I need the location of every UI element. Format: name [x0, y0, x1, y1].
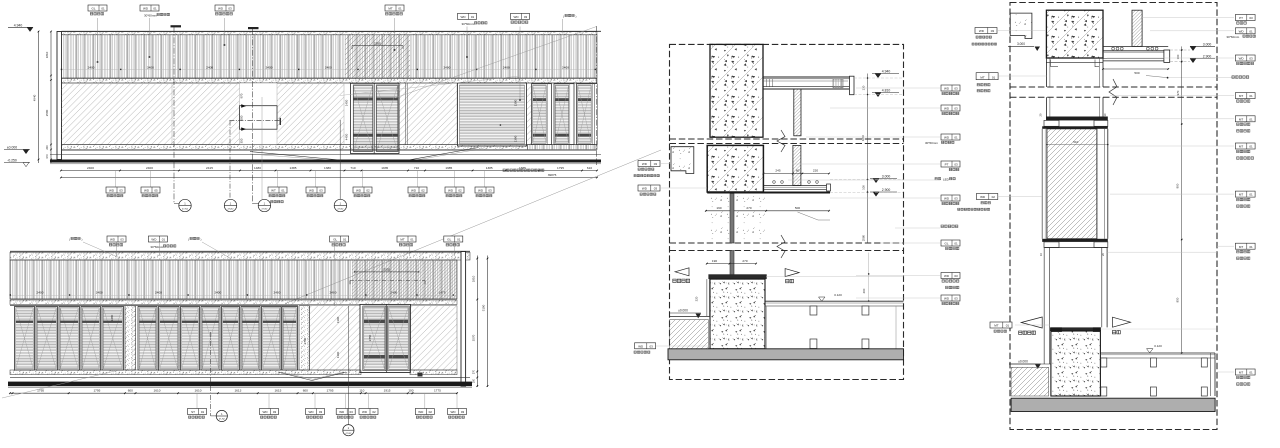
svg-text:710: 710: [414, 166, 419, 170]
svg-text:WD: WD: [461, 15, 467, 19]
svg-text:2400: 2400: [88, 66, 95, 70]
svg-text:WD: WD: [109, 189, 115, 193]
svg-text:01: 01: [162, 238, 166, 242]
svg-text:LED: LED: [943, 178, 950, 182]
svg-text:4.940: 4.940: [14, 23, 23, 27]
svg-text:(: (: [188, 238, 189, 242]
svg-text:350: 350: [239, 138, 243, 143]
svg-text:02: 02: [372, 410, 376, 414]
svg-text:MT: MT: [1239, 145, 1243, 149]
svg-text:2400: 2400: [146, 166, 153, 170]
svg-text:PT: PT: [1239, 16, 1243, 20]
svg-text:01: 01: [471, 15, 475, 19]
svg-text:03: 03: [654, 162, 658, 166]
svg-text:03: 03: [954, 163, 958, 167]
svg-text:610: 610: [587, 166, 592, 170]
svg-text:MT: MT: [1239, 371, 1243, 375]
svg-text:1390: 1390: [514, 135, 518, 142]
svg-text:500: 500: [1134, 71, 1139, 75]
svg-text:03: 03: [954, 197, 958, 201]
svg-text:3.000: 3.000: [1203, 42, 1212, 46]
svg-text:03: 03: [1249, 57, 1253, 61]
svg-text:): ): [576, 15, 577, 19]
svg-text:2400: 2400: [155, 290, 162, 294]
svg-text:1810: 1810: [45, 51, 49, 58]
svg-text:WD: WD: [144, 189, 150, 193]
svg-text:(: (: [69, 238, 70, 242]
svg-text:60: 60: [796, 169, 800, 173]
svg-text:WD: WD: [1239, 57, 1245, 61]
svg-text:WD: WD: [151, 238, 157, 242]
svg-text:WD: WD: [339, 410, 345, 414]
svg-text:4940: 4940: [33, 94, 37, 101]
svg-text:2.900: 2.900: [882, 188, 891, 192]
svg-text:2400: 2400: [330, 290, 337, 294]
svg-text:WD: WD: [309, 410, 315, 414]
svg-text:600: 600: [128, 389, 133, 393]
svg-text:0.120: 0.120: [1154, 344, 1162, 348]
svg-text:02: 02: [421, 189, 425, 193]
svg-text:WD: WD: [642, 187, 648, 191]
svg-text:2555: 2555: [383, 268, 390, 272]
svg-text:03: 03: [120, 238, 124, 242]
svg-text:03: 03: [319, 189, 323, 193]
svg-text:01: 01: [1249, 29, 1253, 33]
svg-text:WD: WD: [451, 410, 457, 414]
svg-text:47-N2: 47-N2: [261, 209, 268, 211]
svg-text:1795: 1795: [93, 389, 100, 393]
svg-text:2415: 2415: [206, 166, 213, 170]
svg-text:ST: ST: [191, 410, 195, 414]
svg-text:02: 02: [429, 410, 433, 414]
svg-text:01: 01: [153, 7, 157, 11]
svg-text:MT: MT: [400, 238, 404, 242]
svg-text:WD: WD: [944, 274, 950, 278]
svg-text:1385: 1385: [486, 166, 493, 170]
svg-text:03: 03: [350, 410, 354, 414]
svg-text:03: 03: [488, 189, 492, 193]
svg-text:±0.000: ±0.000: [7, 146, 17, 150]
svg-text:03: 03: [228, 7, 232, 11]
svg-text:30*60mm: 30*60mm: [925, 141, 938, 145]
svg-text:2750: 2750: [368, 334, 372, 341]
svg-text:GL: GL: [447, 238, 451, 242]
svg-text:3.000: 3.000: [882, 175, 891, 179]
svg-text:3.000: 3.000: [1017, 42, 1025, 46]
svg-text:370: 370: [473, 369, 476, 374]
svg-text:WD: WD: [218, 7, 224, 11]
svg-text:320: 320: [695, 296, 699, 301]
svg-text:01: 01: [1249, 245, 1253, 249]
svg-text:): ): [201, 238, 202, 242]
svg-text:2400: 2400: [562, 66, 569, 70]
svg-text:03: 03: [991, 29, 995, 33]
svg-text:5190: 5190: [482, 304, 486, 311]
svg-text:4.940: 4.940: [882, 70, 891, 74]
svg-text:47-N2: 47-N2: [182, 209, 189, 211]
svg-text:03: 03: [954, 87, 958, 91]
svg-text:2570: 2570: [472, 334, 476, 341]
svg-text:MT: MT: [980, 75, 984, 79]
svg-text:1610: 1610: [154, 389, 161, 393]
svg-text:1610: 1610: [195, 389, 202, 393]
svg-text:30*60mm: 30*60mm: [462, 22, 475, 26]
svg-text:110: 110: [359, 389, 364, 393]
svg-text:100: 100: [408, 389, 413, 393]
svg-text:710: 710: [350, 166, 355, 170]
svg-text:01: 01: [954, 136, 958, 140]
svg-text:1915: 1915: [384, 389, 391, 393]
svg-text:130: 130: [862, 85, 866, 90]
svg-text:30*60mm: 30*60mm: [150, 245, 163, 249]
svg-text:39875: 39875: [548, 173, 557, 177]
svg-text:WD: WD: [309, 189, 315, 193]
svg-text:MT: MT: [994, 324, 998, 328]
svg-text:01: 01: [1249, 145, 1253, 149]
svg-text:MT: MT: [388, 7, 392, 11]
svg-text:270: 270: [742, 259, 747, 263]
svg-text:100: 100: [862, 185, 866, 190]
svg-text:245: 245: [775, 169, 780, 173]
svg-text:01: 01: [1249, 94, 1253, 98]
svg-text:1450: 1450: [345, 99, 349, 106]
svg-text:200: 200: [862, 288, 866, 293]
svg-text:1985: 1985: [445, 166, 452, 170]
svg-text:2580: 2580: [862, 234, 866, 241]
svg-text:WD: WD: [638, 344, 644, 348]
svg-text:GL: GL: [944, 242, 948, 246]
svg-text:01: 01: [457, 238, 461, 242]
svg-text:WD: WD: [143, 7, 149, 11]
svg-text:WD: WD: [448, 189, 454, 193]
svg-text:WD: WD: [944, 107, 950, 111]
svg-text:03: 03: [273, 410, 277, 414]
svg-text:03: 03: [954, 274, 958, 278]
svg-text:03: 03: [319, 410, 323, 414]
svg-text:850: 850: [1176, 297, 1180, 302]
svg-text:1385: 1385: [290, 166, 297, 170]
svg-text:WD: WD: [642, 162, 648, 166]
svg-text:4.810: 4.810: [882, 89, 891, 93]
svg-text:4450: 4450: [345, 133, 349, 140]
svg-text:2400: 2400: [214, 290, 221, 294]
svg-text:02: 02: [458, 189, 462, 193]
svg-text:01: 01: [992, 75, 996, 79]
svg-text:03: 03: [524, 15, 528, 19]
svg-text:2400: 2400: [96, 290, 103, 294]
svg-text:2400: 2400: [325, 66, 332, 70]
svg-text:WD: WD: [979, 29, 985, 33]
svg-text:WD: WD: [418, 410, 424, 414]
svg-text:01: 01: [201, 410, 205, 414]
svg-text:03: 03: [650, 344, 654, 348]
svg-text:200: 200: [473, 378, 476, 383]
svg-text:1380: 1380: [324, 166, 331, 170]
svg-text:2400: 2400: [206, 66, 213, 70]
svg-text:2400: 2400: [266, 66, 273, 70]
svg-text:1810: 1810: [472, 275, 476, 282]
svg-text:WD: WD: [1239, 29, 1245, 33]
svg-text:03: 03: [461, 410, 465, 414]
svg-text:1385: 1385: [519, 166, 526, 170]
svg-text:GL: GL: [91, 7, 95, 11]
svg-text:01: 01: [954, 242, 958, 246]
svg-text:01: 01: [1249, 193, 1253, 197]
svg-text:MT: MT: [1239, 94, 1243, 98]
svg-text:WD: WD: [514, 15, 520, 19]
svg-text:1390: 1390: [336, 316, 340, 323]
svg-text:500: 500: [795, 206, 800, 210]
svg-text:(: (: [563, 15, 564, 19]
svg-text:3480: 3480: [110, 314, 114, 321]
svg-text:01: 01: [410, 238, 414, 242]
svg-text:WD: WD: [110, 238, 116, 242]
svg-text:MT: MT: [1239, 245, 1243, 249]
svg-text:WD: WD: [944, 197, 950, 201]
svg-text:2400: 2400: [147, 66, 154, 70]
svg-text:02: 02: [992, 195, 996, 199]
svg-text:2400: 2400: [274, 290, 281, 294]
svg-text:2400: 2400: [87, 166, 94, 170]
svg-text:): ): [82, 238, 83, 242]
svg-text:47-N2: 47-N2: [337, 209, 344, 211]
svg-text:MT: MT: [1239, 193, 1243, 197]
svg-text:WD: WD: [356, 189, 362, 193]
svg-text:WD: WD: [944, 136, 950, 140]
svg-text:30*60mm: 30*60mm: [144, 14, 157, 18]
svg-text:03: 03: [954, 297, 958, 301]
svg-text:2580: 2580: [45, 109, 49, 116]
svg-text:PT: PT: [945, 163, 949, 167]
svg-text:01: 01: [398, 7, 402, 11]
svg-text:2400: 2400: [37, 290, 44, 294]
svg-text:600: 600: [303, 389, 308, 393]
svg-text:01: 01: [281, 189, 285, 193]
svg-text:30*60mm: 30*60mm: [1226, 35, 1239, 39]
svg-text:1613: 1613: [234, 389, 241, 393]
svg-text:01: 01: [1006, 324, 1010, 328]
svg-text:WD: WD: [980, 195, 986, 199]
svg-text:200: 200: [45, 145, 49, 150]
svg-text:03: 03: [654, 187, 658, 191]
svg-text:2780: 2780: [303, 337, 307, 344]
svg-text:01: 01: [101, 7, 105, 11]
svg-text:190: 190: [712, 259, 717, 263]
svg-text:±0.000: ±0.000: [1018, 360, 1028, 364]
svg-text:900: 900: [1176, 183, 1180, 188]
svg-text:370: 370: [45, 154, 49, 159]
svg-text:01: 01: [343, 238, 347, 242]
svg-text:03: 03: [119, 189, 123, 193]
svg-text:MT: MT: [1239, 117, 1243, 121]
svg-text:600: 600: [239, 115, 243, 120]
svg-text:1795: 1795: [557, 166, 564, 170]
svg-text:1615: 1615: [274, 389, 281, 393]
svg-text:0.120: 0.120: [834, 293, 842, 297]
svg-text:2400: 2400: [503, 66, 510, 70]
svg-text:01: 01: [1249, 117, 1253, 121]
svg-text:WD: WD: [944, 87, 950, 91]
svg-text:1390: 1390: [514, 99, 518, 106]
svg-text:WD: WD: [362, 410, 368, 414]
svg-text:02: 02: [366, 189, 370, 193]
svg-text:03: 03: [954, 107, 958, 111]
svg-text:-0.250: -0.250: [7, 159, 17, 163]
svg-text:220: 220: [813, 169, 818, 173]
svg-text:510: 510: [1073, 140, 1078, 144]
svg-text:WD: WD: [944, 297, 950, 301]
svg-text:05: 05: [154, 189, 158, 193]
svg-text:WD: WD: [411, 189, 417, 193]
svg-text:2555: 2555: [374, 41, 381, 45]
svg-text:WT: WT: [271, 189, 276, 193]
svg-text:WD: WD: [478, 189, 484, 193]
svg-text:WD: WD: [263, 410, 269, 414]
svg-text:1775: 1775: [434, 389, 441, 393]
svg-text:1935: 1935: [381, 166, 388, 170]
svg-text:03: 03: [1249, 16, 1253, 20]
svg-text:47-N2: 47-N2: [219, 419, 226, 421]
svg-text:100: 100: [1176, 54, 1180, 59]
svg-text:47-N2: 47-N2: [228, 209, 235, 211]
svg-text:01: 01: [1249, 371, 1253, 375]
svg-text:±0.000: ±0.000: [678, 308, 688, 312]
svg-text:GL: GL: [333, 238, 337, 242]
svg-text:1480: 1480: [254, 166, 261, 170]
svg-text:1795: 1795: [327, 389, 334, 393]
svg-text:47-N2: 47-N2: [345, 433, 352, 435]
svg-text:970: 970: [239, 93, 243, 98]
svg-text:1390: 1390: [336, 351, 340, 358]
svg-text:2400: 2400: [443, 66, 450, 70]
svg-text:970: 970: [1176, 90, 1180, 95]
svg-text:1810: 1810: [861, 134, 865, 141]
